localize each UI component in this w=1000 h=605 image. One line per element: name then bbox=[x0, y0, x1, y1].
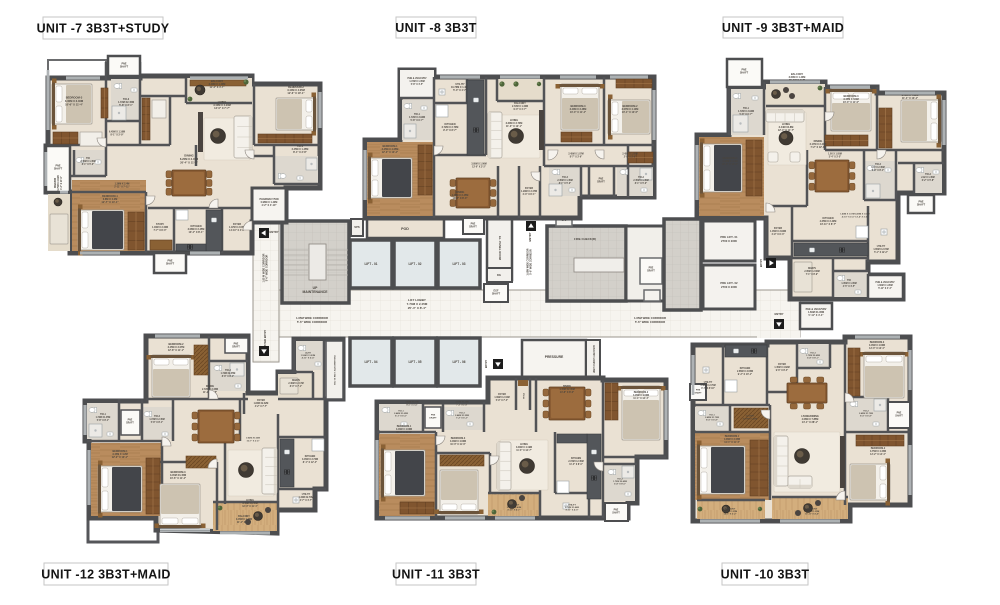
svg-text:PNE: PNE bbox=[471, 224, 476, 226]
svg-text:LIFT - 06: LIFT - 06 bbox=[453, 360, 466, 364]
svg-text:8'-1" X 3'-8": 8'-1" X 3'-8" bbox=[293, 151, 307, 154]
svg-text:5'-6" WIDE CORRIDOR: 5'-6" WIDE CORRIDOR bbox=[266, 254, 269, 281]
svg-text:9'-0" X 4'-7": 9'-0" X 4'-7" bbox=[513, 108, 526, 111]
svg-text:TOI-3: TOI-3 bbox=[875, 164, 881, 166]
svg-text:7'-2" X 2'-9": 7'-2" X 2'-9" bbox=[456, 404, 467, 406]
svg-text:2.77M X1.14M: 2.77M X1.14M bbox=[455, 401, 468, 404]
svg-text:11'-1" X 4'-7": 11'-1" X 4'-7" bbox=[237, 521, 251, 524]
svg-text:9'-6" X 8'-4": 9'-6" X 8'-4" bbox=[776, 369, 788, 372]
svg-text:DRAFT: DRAFT bbox=[647, 269, 655, 272]
svg-text:BALCONY: BALCONY bbox=[509, 503, 520, 506]
svg-text:2.40M X 2.17M: 2.40M X 2.17M bbox=[288, 382, 303, 385]
svg-text:11'-0" X 13'-7": 11'-0" X 13'-7" bbox=[516, 449, 532, 452]
svg-text:2'-0" X 3'-6": 2'-0" X 3'-6" bbox=[624, 156, 636, 158]
svg-text:TOI-3: TOI-3 bbox=[154, 416, 160, 418]
svg-text:10'-0" X 11'-6": 10'-0" X 11'-6" bbox=[450, 443, 466, 446]
svg-text:PNE: PNE bbox=[234, 344, 239, 346]
svg-text:12'-7" X 14'-1": 12'-7" X 14'-1" bbox=[101, 200, 119, 204]
svg-text:TOI-2: TOI-2 bbox=[863, 410, 869, 412]
svg-text:BEDROOM-3: BEDROOM-3 bbox=[66, 96, 83, 100]
svg-text:LIFT - 02: LIFT - 02 bbox=[409, 262, 422, 266]
svg-text:FOYER: FOYER bbox=[498, 394, 506, 396]
svg-text:2.45M X 1.45M: 2.45M X 1.45M bbox=[80, 160, 95, 163]
svg-text:FOYER: FOYER bbox=[257, 400, 265, 402]
svg-text:2.92 X 1.45M: 2.92 X 1.45M bbox=[921, 176, 935, 179]
svg-text:5'-8" X 8'-1": 5'-8" X 8'-1" bbox=[151, 422, 163, 424]
svg-text:LIFT - 01: LIFT - 01 bbox=[365, 262, 378, 266]
svg-text:8'-11" X 4'-9": 8'-11" X 4'-9" bbox=[566, 509, 579, 512]
svg-text:PHE & HVAC/VRV: PHE & HVAC/VRV bbox=[408, 77, 427, 80]
svg-text:8'-7" X 3'-6": 8'-7" X 3'-6" bbox=[570, 156, 582, 158]
svg-text:TOI-3: TOI-3 bbox=[459, 412, 465, 414]
svg-text:DRAFT: DRAFT bbox=[126, 421, 134, 424]
svg-text:4.06M X 1.35M: 4.06M X 1.35M bbox=[723, 510, 738, 513]
svg-text:11'-0" X 12'-1": 11'-0" X 12'-1" bbox=[506, 125, 522, 128]
svg-text:12'-0" X 13'-4": 12'-0" X 13'-4" bbox=[382, 151, 398, 154]
svg-text:TOI: TOI bbox=[847, 280, 851, 282]
svg-text:5'-8" X 9'-7": 5'-8" X 9'-7" bbox=[739, 113, 752, 116]
svg-text:7'-1" X 8'-9": 7'-1" X 8'-9" bbox=[806, 274, 818, 276]
svg-text:TOI: TOI bbox=[86, 158, 90, 160]
svg-text:STAIR ENTRY: STAIR ENTRY bbox=[264, 330, 267, 347]
svg-text:ENTRY: ENTRY bbox=[774, 312, 783, 316]
svg-text:BALCONY: BALCONY bbox=[725, 507, 736, 510]
svg-text:1.84M X2.42M: 1.84M X2.42M bbox=[254, 402, 269, 405]
svg-text:TOI-2: TOI-2 bbox=[617, 478, 623, 480]
svg-text:5'-6" WIDE CORRIDOR: 5'-6" WIDE CORRIDOR bbox=[530, 249, 533, 275]
svg-text:1.72M X2.45M: 1.72M X2.45M bbox=[613, 480, 627, 483]
svg-text:11'-4" X 8'-0": 11'-4" X 8'-0" bbox=[569, 463, 583, 466]
svg-text:12'-0" X 7'-7": 12'-0" X 7'-7" bbox=[214, 106, 230, 110]
svg-text:MAID'S: MAID'S bbox=[292, 379, 300, 382]
svg-text:5'-11" X 4'-4": 5'-11" X 4'-4" bbox=[809, 314, 824, 317]
svg-text:PNE: PNE bbox=[897, 413, 902, 415]
svg-text:UTILITY: UTILITY bbox=[302, 494, 311, 496]
svg-text:5'-11" X 4'-4": 5'-11" X 4'-4" bbox=[878, 287, 892, 290]
svg-text:UNIT -11 3B3T: UNIT -11 3B3T bbox=[392, 568, 480, 582]
svg-text:2.46M X1.65M: 2.46M X1.65M bbox=[394, 412, 408, 415]
svg-text:2.45M X 1.45M: 2.45M X 1.45M bbox=[557, 179, 572, 182]
svg-text:2.44M X1.07M: 2.44M X1.07M bbox=[405, 401, 418, 404]
svg-text:2.45M X 1.45M: 2.45M X 1.45M bbox=[633, 179, 648, 182]
svg-text:1.45M X 3.82M: 1.45M X 3.82M bbox=[774, 366, 789, 369]
svg-text:1.72 X 2.45M: 1.72 X 2.45M bbox=[871, 166, 885, 169]
svg-text:1.45M X 1.07M 4.06M X 1.07M: 1.45M X 1.07M 4.06M X 1.07M bbox=[840, 213, 870, 216]
svg-text:BALCONY: BALCONY bbox=[807, 507, 818, 510]
svg-text:1.72M X1.45M: 1.72M X1.45M bbox=[96, 416, 111, 419]
svg-text:1.09M X 2.34M: 1.09M X 2.34M bbox=[494, 396, 509, 399]
svg-text:4'-7" X 4'-7": 4'-7" X 4'-7" bbox=[300, 499, 312, 502]
svg-text:10'-6" X 11'-4": 10'-6" X 11'-4" bbox=[170, 477, 186, 480]
svg-text:12'-2" X 13'-1": 12'-2" X 13'-1" bbox=[112, 456, 128, 459]
svg-text:TOI-3: TOI-3 bbox=[810, 352, 816, 354]
svg-text:10'-0" X 11'-4": 10'-0" X 11'-4" bbox=[570, 111, 586, 114]
svg-text:3.30M X 3.46M: 3.30M X 3.46M bbox=[65, 99, 84, 103]
svg-text:MAINTENANCE: MAINTENANCE bbox=[303, 290, 329, 294]
svg-text:LIFT - 05: LIFT - 05 bbox=[409, 360, 422, 364]
svg-text:SHAFT: SHAFT bbox=[694, 391, 702, 394]
svg-text:12'-3" X 14'-5": 12'-3" X 14'-5" bbox=[722, 163, 738, 166]
svg-text:UNIT -8 3B3T: UNIT -8 3B3T bbox=[395, 21, 476, 35]
svg-text:5'-6" WIDE CORRIDOR: 5'-6" WIDE CORRIDOR bbox=[635, 320, 665, 324]
svg-text:PUJA: PUJA bbox=[522, 393, 525, 399]
svg-text:1.35M X 1.35M: 1.35M X 1.35M bbox=[841, 283, 856, 285]
svg-text:HVAC/VRV 1.60M X 1.35M: HVAC/VRV 1.60M X 1.35M bbox=[592, 345, 595, 372]
svg-text:MAID/RM: MAID/RM bbox=[54, 178, 57, 188]
svg-text:1.72M X 2.45M: 1.72M X 2.45M bbox=[149, 418, 164, 421]
svg-text:5'-8" X 9'-7": 5'-8" X 9'-7" bbox=[410, 119, 423, 122]
svg-text:UTILITY: UTILITY bbox=[877, 246, 886, 248]
svg-text:1.40M X 2.70M: 1.40M X 2.70M bbox=[700, 384, 715, 387]
svg-text:LIFT - 04: LIFT - 04 bbox=[365, 360, 378, 364]
svg-text:1.60M X 1.95M: 1.60M X 1.95M bbox=[877, 285, 892, 287]
svg-text:8'-10" X 4'-7": 8'-10" X 4'-7" bbox=[508, 509, 521, 512]
svg-text:10'-7" X 3'-6": 10'-7" X 3'-6" bbox=[247, 440, 260, 442]
svg-text:ENTRY: ENTRY bbox=[269, 230, 278, 234]
svg-text:TOI-1: TOI-1 bbox=[709, 414, 715, 416]
svg-text:20'-4" X 11'-2": 20'-4" X 11'-2" bbox=[180, 160, 199, 164]
svg-text:SPS: SPS bbox=[354, 225, 360, 229]
svg-text:25'-4" X 8'-4": 25'-4" X 8'-4" bbox=[408, 306, 427, 310]
svg-text:10'-6" X 11'-4": 10'-6" X 11'-4" bbox=[65, 102, 84, 106]
svg-text:1.72M X2.45M: 1.72M X2.45M bbox=[221, 372, 236, 375]
svg-text:8'-1" X 5'-3": 8'-1" X 5'-3" bbox=[82, 164, 94, 166]
svg-text:14'-1" X 28'-1": 14'-1" X 28'-1" bbox=[802, 421, 818, 424]
svg-text:TOI-2: TOI-2 bbox=[225, 370, 231, 372]
svg-text:12'-6" X 10'-1": 12'-6" X 10'-1" bbox=[287, 91, 305, 95]
svg-text:2.35M X 2.06M: 2.35M X 2.06M bbox=[804, 271, 819, 273]
svg-text:5'-6" WIDE CORRIDOR: 5'-6" WIDE CORRIDOR bbox=[297, 320, 327, 324]
svg-text:4'-10" X 3'-6" 13'-4" X 3'-6: 4'-10" X 3'-6" 13'-4" X 3'-6" bbox=[842, 215, 869, 218]
svg-text:LIFT - 03: LIFT - 03 bbox=[453, 262, 466, 266]
svg-text:8'-1" X 3'-9": 8'-1" X 3'-9" bbox=[110, 134, 123, 137]
svg-text:4'-2" X 7'-7": 4'-2" X 7'-7" bbox=[255, 405, 267, 408]
svg-text:7'-7" X 8'-0": 7'-7" X 8'-0" bbox=[153, 229, 166, 232]
svg-text:2'-11" X 7'-11": 2'-11" X 7'-11" bbox=[114, 186, 129, 189]
svg-text:SHAFT: SHAFT bbox=[895, 414, 903, 417]
svg-text:SHAFT: SHAFT bbox=[612, 511, 620, 514]
svg-text:PHE & HVAC/VRV: PHE & HVAC/VRV bbox=[876, 281, 895, 284]
svg-text:2.45M X1.72M: 2.45M X1.72M bbox=[705, 416, 719, 419]
svg-text:ENTRY: ENTRY bbox=[760, 259, 763, 268]
svg-text:PRESSURE: PRESSURE bbox=[545, 355, 564, 359]
svg-text:2.70M X 1.40M: 2.70M X 1.40M bbox=[507, 506, 522, 509]
svg-text:DRAFT: DRAFT bbox=[429, 416, 437, 419]
svg-text:11'-4" X 13'-4": 11'-4" X 13'-4" bbox=[633, 397, 649, 400]
svg-text:8'-1" X 5'-5": 8'-1" X 5'-5" bbox=[395, 416, 407, 418]
svg-text:ALTH: ALTH bbox=[305, 351, 311, 354]
svg-text:5'-8" X 8'-1": 5'-8" X 8'-1" bbox=[119, 104, 133, 107]
svg-text:14'-1" X 11'-4": 14'-1" X 11'-4" bbox=[724, 441, 740, 444]
svg-text:1.72M X2.45M: 1.72M X2.45M bbox=[806, 354, 820, 357]
svg-text:5'-8" X 8'-1": 5'-8" X 8'-1" bbox=[872, 170, 884, 172]
svg-text:DG: DG bbox=[497, 273, 501, 277]
svg-text:1.65M X 2.72M: 1.65M X 2.72M bbox=[873, 249, 888, 251]
svg-text:EL. PANEL ROOM: EL. PANEL ROOM bbox=[498, 236, 502, 261]
svg-text:2700 X 2300: 2700 X 2300 bbox=[721, 285, 737, 289]
svg-text:10'-0" X 11'-6": 10'-0" X 11'-6" bbox=[396, 431, 412, 434]
svg-text:FOYER: FOYER bbox=[778, 364, 786, 366]
svg-text:PNE: PNE bbox=[128, 420, 133, 422]
svg-text:UNIT -10 3B3T: UNIT -10 3B3T bbox=[721, 568, 810, 582]
svg-text:12'-2" X 14'-4": 12'-2" X 14'-4" bbox=[870, 453, 886, 456]
svg-text:1.40M X2.70M: 1.40M X2.70M bbox=[299, 496, 314, 499]
svg-text:TOI-1: TOI-1 bbox=[398, 410, 404, 412]
svg-text:5'-8" X 8'-1": 5'-8" X 8'-1" bbox=[97, 420, 109, 422]
svg-text:7'-2" X 12'-8": 7'-2" X 12'-8" bbox=[810, 146, 825, 149]
svg-text:8'-1" X 5'-3": 8'-1" X 5'-3" bbox=[559, 183, 571, 185]
svg-text:4'-11" X 6'-4": 4'-11" X 6'-4" bbox=[302, 357, 315, 360]
svg-text:8'-0" X 7'-1": 8'-0" X 7'-1" bbox=[290, 386, 302, 388]
svg-text:8'-1" X 12'-4": 8'-1" X 12'-4" bbox=[303, 461, 317, 464]
svg-text:UTILITY: UTILITY bbox=[568, 504, 577, 506]
svg-text:11'-4" X 13'-4": 11'-4" X 13'-4" bbox=[902, 97, 918, 100]
svg-text:SHAFT: SHAFT bbox=[492, 293, 501, 296]
svg-text:4'-9" X 9'-3": 4'-9" X 9'-3" bbox=[771, 233, 784, 236]
svg-text:2.45M X 1.05M: 2.45M X 1.05M bbox=[622, 153, 637, 156]
svg-text:12'-0" X 13'-4": 12'-0" X 13'-4" bbox=[869, 347, 885, 350]
svg-text:9'-2" X 10'-1": 9'-2" X 10'-1" bbox=[738, 373, 752, 376]
svg-text:1.50M X 3.93M: 1.50M X 3.93M bbox=[301, 355, 316, 357]
svg-text:4.06M X 1.35M: 4.06M X 1.35M bbox=[805, 510, 820, 513]
svg-text:5'-8" X 8'-1": 5'-8" X 8'-1" bbox=[807, 358, 819, 360]
svg-text:TOI-3: TOI-3 bbox=[562, 177, 568, 179]
svg-text:POD: POD bbox=[401, 227, 409, 231]
svg-text:DRAFT: DRAFT bbox=[597, 180, 605, 183]
svg-text:1.0X X 1.05M: 1.0X X 1.05M bbox=[828, 154, 842, 156]
svg-text:5'-8" X 4'-5": 5'-8" X 4'-5" bbox=[411, 83, 423, 86]
svg-text:PNE: PNE bbox=[614, 510, 619, 512]
svg-text:8'-0" X 3'-6": 8'-0" X 3'-6" bbox=[406, 404, 417, 406]
svg-text:13'-0" X 3'-2": 13'-0" X 3'-2" bbox=[472, 166, 486, 168]
svg-text:5'-1" X 12'-2": 5'-1" X 12'-2" bbox=[874, 252, 888, 254]
svg-text:4'-2" X 10'-9": 4'-2" X 10'-9" bbox=[60, 176, 63, 190]
svg-text:PRE: PRE bbox=[649, 268, 654, 270]
svg-text:6.20M X 2.45M: 6.20M X 2.45M bbox=[180, 157, 199, 161]
svg-text:11'-2" X 4'-7": 11'-2" X 4'-7" bbox=[210, 86, 225, 89]
svg-text:PNE: PNE bbox=[599, 179, 604, 181]
svg-text:TOI-2: TOI-2 bbox=[638, 177, 644, 179]
svg-text:14'-8" X 8'-0": 14'-8" X 8'-0" bbox=[560, 391, 574, 394]
svg-text:12'-4" X 11'-7": 12'-4" X 11'-7" bbox=[778, 129, 794, 132]
svg-text:TOI-1: TOI-1 bbox=[100, 414, 106, 416]
svg-text:8'-1" X 5'-3": 8'-1" X 5'-3" bbox=[635, 183, 647, 185]
svg-text:UTILITY: UTILITY bbox=[704, 382, 713, 384]
svg-text:2.72M X1.46M: 2.72M X1.46M bbox=[565, 506, 579, 509]
svg-text:FIRE CHECK(R): FIRE CHECK(R) bbox=[574, 237, 596, 241]
svg-text:2.45M X 1.07M: 2.45M X 1.07M bbox=[568, 153, 583, 156]
svg-text:8'-0" X 5'-8": 8'-0" X 5'-8" bbox=[860, 416, 872, 418]
svg-text:3'-4" X 3'-5": 3'-4" X 3'-5" bbox=[829, 155, 841, 158]
svg-text:UNIT -7 3B3T+STUDY: UNIT -7 3B3T+STUDY bbox=[37, 22, 170, 36]
svg-text:4'-7" X 8'-10": 4'-7" X 8'-10" bbox=[701, 387, 715, 390]
svg-text:UNIT -12 3B3T+MAID: UNIT -12 3B3T+MAID bbox=[41, 568, 170, 582]
svg-text:2.72M X 2.45M: 2.72M X 2.45M bbox=[568, 460, 583, 463]
svg-text:6'-2" X 5'-8": 6'-2" X 5'-8" bbox=[922, 180, 934, 182]
svg-text:10'-4" X 8'-1": 10'-4" X 8'-1" bbox=[188, 231, 203, 234]
svg-text:ENTRY: ENTRY bbox=[485, 360, 488, 369]
svg-text:12'-8" X 11'-1": 12'-8" X 11'-1" bbox=[168, 349, 184, 352]
svg-text:SHAFT: SHAFT bbox=[54, 168, 63, 171]
svg-text:5'-9" X 7'-4": 5'-9" X 7'-4" bbox=[496, 399, 508, 402]
svg-text:TOI-2: TOI-2 bbox=[925, 174, 931, 176]
svg-text:13'-11" X 8'-7": 13'-11" X 8'-7" bbox=[820, 223, 836, 226]
svg-text:KITCHEN: KITCHEN bbox=[571, 458, 581, 460]
svg-text:PHE&HVAC/VRV 1.35M X3.72M: PHE&HVAC/VRV 1.35M X3.72M bbox=[333, 355, 336, 385]
svg-text:8'-8" X 8'-1": 8'-8" X 8'-1" bbox=[222, 376, 234, 378]
svg-text:5'-8" X 8'-0": 5'-8" X 8'-0" bbox=[614, 484, 626, 486]
svg-text:UNIT -9 3B3T+MAID: UNIT -9 3B3T+MAID bbox=[722, 21, 844, 35]
svg-text:12'-3" X 11'-1": 12'-3" X 11'-1" bbox=[242, 505, 258, 508]
svg-text:14'-8" X 8'-0": 14'-8" X 8'-0" bbox=[452, 197, 467, 200]
svg-text:SHAFT: SHAFT bbox=[120, 66, 129, 69]
svg-text:14'-10" X 4'-9": 14'-10" X 4'-9" bbox=[229, 229, 245, 232]
svg-text:10'-0" X 11'-0": 10'-0" X 11'-0" bbox=[843, 101, 859, 104]
svg-text:4'-2" X 4'-10": 4'-2" X 4'-10" bbox=[261, 204, 276, 207]
svg-text:3.95M X 1.06M: 3.95M X 1.06M bbox=[471, 164, 486, 166]
svg-text:2.45M X1.72M: 2.45M X1.72M bbox=[859, 412, 873, 415]
svg-text:MAID'S: MAID'S bbox=[808, 267, 816, 270]
svg-text:DRAFT: DRAFT bbox=[469, 225, 477, 228]
svg-text:14'-1" X 3'-2": 14'-1" X 3'-2" bbox=[724, 513, 737, 516]
svg-text:5'-0" X 4'-7": 5'-0" X 4'-7" bbox=[453, 89, 467, 92]
svg-text:4'-5" X 4'-5": 4'-5" X 4'-5" bbox=[843, 285, 855, 288]
svg-text:DRAFT: DRAFT bbox=[232, 345, 240, 348]
svg-text:1.72M X 1.35M: 1.72M X 1.35M bbox=[409, 81, 424, 83]
svg-text:DINING: DINING bbox=[184, 154, 193, 158]
svg-text:4'-3" X 8'-1": 4'-3" X 8'-1" bbox=[522, 193, 535, 196]
svg-text:8'-0" X 5'-8": 8'-0" X 5'-8" bbox=[706, 420, 718, 422]
svg-text:10'-1" X 13'-5": 10'-1" X 13'-5" bbox=[622, 111, 638, 114]
svg-text:SHAFT: SHAFT bbox=[166, 263, 175, 266]
svg-text:2.07M X 1.45M: 2.07M X 1.45M bbox=[743, 417, 758, 420]
svg-text:2700 X 2300: 2700 X 2300 bbox=[721, 239, 737, 243]
svg-text:1.75M X 3.11M: 1.75M X 3.11M bbox=[58, 175, 60, 190]
svg-text:2.46M X1.55M: 2.46M X1.55M bbox=[455, 414, 469, 417]
svg-text:SHAFT: SHAFT bbox=[917, 204, 926, 207]
svg-text:7'-2" X 5'-3": 7'-2" X 5'-3" bbox=[456, 418, 468, 420]
svg-text:ENTRY: ENTRY bbox=[528, 232, 532, 241]
svg-text:13'-11" X 4'-4": 13'-11" X 4'-4" bbox=[805, 513, 819, 516]
svg-text:SHAFT: SHAFT bbox=[740, 72, 749, 75]
svg-text:9'-0" X 8'-7": 9'-0" X 8'-7" bbox=[443, 129, 457, 132]
